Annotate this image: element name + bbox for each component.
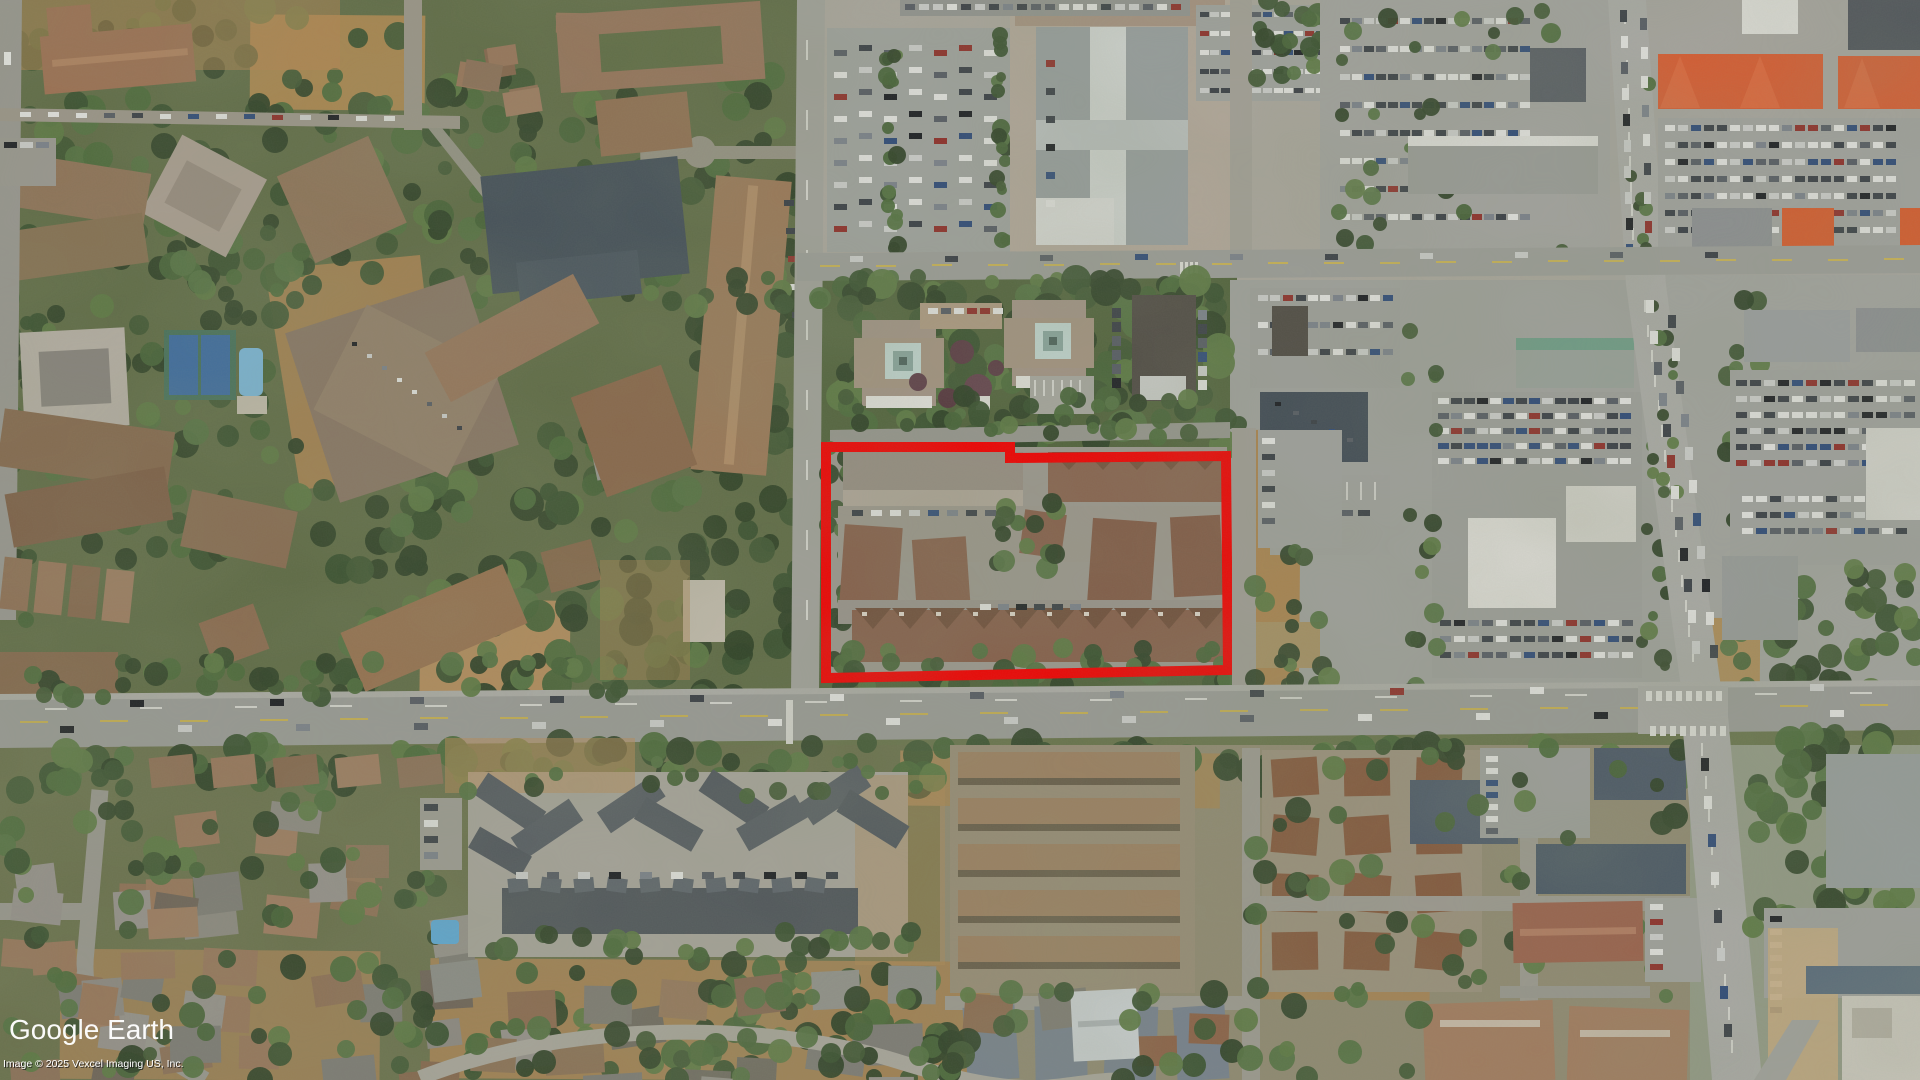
svg-text:Image © 2025 Vexcel Imaging US: Image © 2025 Vexcel Imaging US, Inc. — [3, 1058, 184, 1070]
svg-text:Google Earth: Google Earth — [9, 1014, 174, 1045]
